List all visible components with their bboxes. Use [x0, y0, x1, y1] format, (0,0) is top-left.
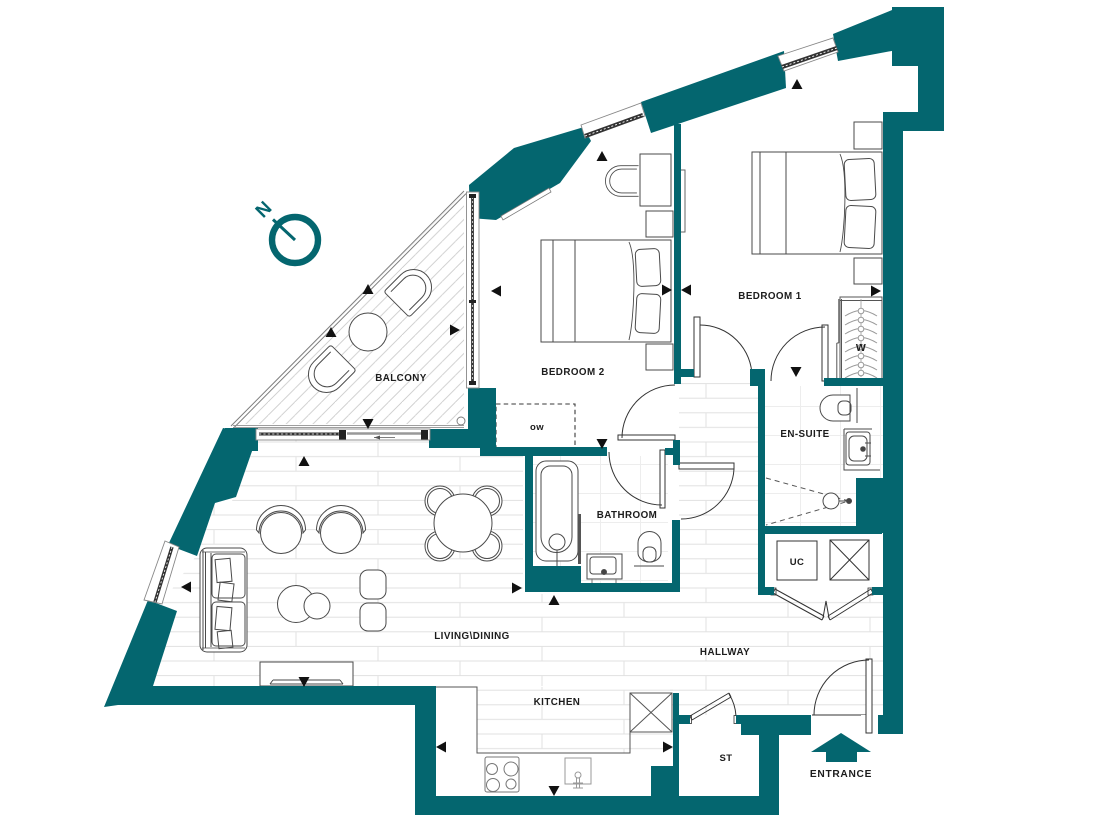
- svg-text:EN-SUITE: EN-SUITE: [780, 429, 829, 440]
- svg-text:KITCHEN: KITCHEN: [534, 697, 581, 708]
- svg-text:W: W: [856, 342, 866, 354]
- svg-text:ST: ST: [720, 753, 733, 764]
- svg-text:BALCONY: BALCONY: [375, 373, 427, 384]
- svg-text:LIVING\DINING: LIVING\DINING: [434, 631, 510, 642]
- svg-text:ENTRANCE: ENTRANCE: [810, 769, 872, 780]
- svg-text:UC: UC: [790, 557, 805, 568]
- svg-text:HALLWAY: HALLWAY: [700, 647, 750, 658]
- svg-text:ow: ow: [530, 422, 544, 433]
- svg-text:BATHROOM: BATHROOM: [597, 510, 658, 521]
- svg-text:BEDROOM 1: BEDROOM 1: [738, 291, 801, 302]
- svg-text:BEDROOM 2: BEDROOM 2: [541, 367, 604, 378]
